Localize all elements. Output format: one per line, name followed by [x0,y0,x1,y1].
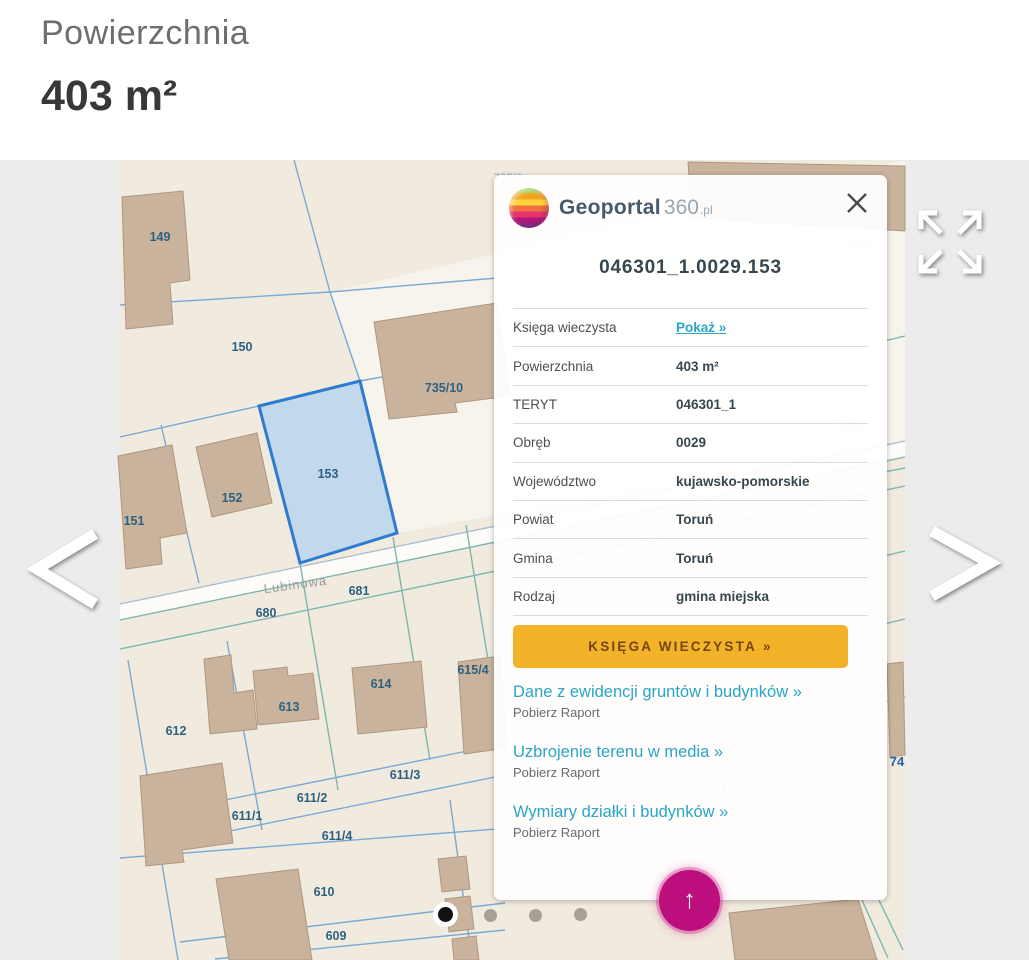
row-label: Rodzaj [513,589,676,604]
parcel-label: 151 [124,514,145,528]
parcel-label: 609 [326,929,347,943]
link-subtitle: Pobierz Raport [513,763,868,782]
parcel-label: 152 [222,491,243,505]
row-label: Gmina [513,551,676,566]
row-value: Toruń [676,551,868,566]
report-links: Dane z ewidencji gruntów i budynków » Po… [513,681,868,861]
page-header: Powierzchnia 403 m² [0,0,1029,160]
brand-tld: .pl [700,203,713,217]
cta-arrow: » [763,639,773,654]
scroll-up-fab[interactable]: ↑ [659,870,720,931]
close-icon[interactable] [845,191,869,215]
link-block: Uzbrojenie terenu w media » Pobierz Rapo… [513,741,868,782]
link-block: Dane z ewidencji gruntów i budynków » Po… [513,681,868,722]
table-row: Księga wieczysta Pokaż » [513,309,868,347]
carousel-dot[interactable] [529,909,542,922]
building [887,662,905,757]
table-row: Powiat Toruń [513,501,868,539]
building [352,661,427,734]
table-row: Obręb 0029 [513,424,868,462]
row-label: Województwo [513,474,676,489]
link-dane-ewidencja[interactable]: Dane z ewidencji gruntów i budynków » [513,681,868,703]
cta-label: KSIĘGA WIECZYSTA [588,639,757,654]
building [452,936,479,960]
parcel-id: 046301_1.0029.153 [494,257,887,279]
brand-number: 360 [664,196,699,220]
brand-word: Geoportal [559,196,661,220]
parcel-label: 610 [314,885,335,899]
parcel-label: 611/4 [322,829,353,843]
row-value: kujawsko-pomorskie [676,474,868,489]
carousel-prev-icon[interactable] [37,534,95,604]
carousel-dot[interactable] [484,909,497,922]
row-value: 046301_1 [676,397,868,412]
row-label: Powiat [513,512,676,527]
parcel-label: 150 [232,340,253,354]
table-row: Powierzchnia 403 m² [513,347,868,385]
row-value: 0029 [676,435,868,450]
parcel-label: 611/2 [297,791,328,805]
parcel-info-panel: Geoportal 360 .pl 046301_1.0029.153 Księ… [494,175,887,900]
row-label: Powierzchnia [513,359,676,374]
link-block: Wymiary działki i budynków » Pobierz Rap… [513,801,868,842]
fullscreen-icon[interactable] [921,213,979,271]
parcel-label: 149 [150,230,171,244]
up-arrow-icon: ↑ [683,884,696,915]
panel-header: Geoportal 360 .pl [509,188,713,228]
row-label: Księga wieczysta [513,320,676,335]
row-value: gmina miejska [676,589,868,604]
building [438,856,470,892]
building [253,667,319,725]
parcel-label: 735/10 [425,381,463,395]
ksiega-wieczysta-button[interactable]: KSIĘGA WIECZYSTA » [513,625,848,668]
geoportal-screen: Powierzchnia 403 m² [0,0,1029,960]
parcel-label: 153 [318,467,339,481]
table-row: Województwo kujawsko-pomorskie [513,463,868,501]
parcel-label: 681 [349,584,370,598]
brand-wordmark: Geoportal 360 .pl [559,196,713,220]
area-label: Powierzchnia [41,14,249,53]
parcel-label: 611/1 [232,809,263,823]
row-value: Toruń [676,512,868,527]
parcel-label: 680 [256,606,277,620]
parcel-label: 74 [890,754,905,769]
carousel-dot[interactable] [574,908,587,921]
row-value: 403 m² [676,359,868,374]
link-subtitle: Pobierz Raport [513,823,868,842]
area-value: 403 m² [41,72,177,121]
row-label: Obręb [513,435,676,450]
link-wymiary[interactable]: Wymiary działki i budynków » [513,801,868,823]
table-row: Rodzaj gmina miejska [513,578,868,616]
parcel-label: 613 [279,700,300,714]
geoportal-logo-icon [509,188,549,228]
row-label: TERYT [513,397,676,412]
carousel-next-icon[interactable] [932,531,990,596]
parcel-label: 611/3 [390,768,421,782]
parcel-label: 615/4 [457,663,488,677]
building [216,869,312,960]
pokaz-link[interactable]: Pokaż » [676,320,868,335]
table-row: Gmina Toruń [513,539,868,577]
map-viewport: 149 150 735/10 151 152 153 680 681 612 6… [0,160,1029,960]
parcel-attribute-table: Księga wieczysta Pokaż » Powierzchnia 40… [513,308,868,616]
link-uzbrojenie[interactable]: Uzbrojenie terenu w media » [513,741,868,763]
parcel-label: 612 [166,724,187,738]
carousel-dot-active[interactable] [433,902,458,927]
link-subtitle: Pobierz Raport [513,703,868,722]
table-row: TERYT 046301_1 [513,386,868,424]
parcel-label: 614 [371,677,392,691]
